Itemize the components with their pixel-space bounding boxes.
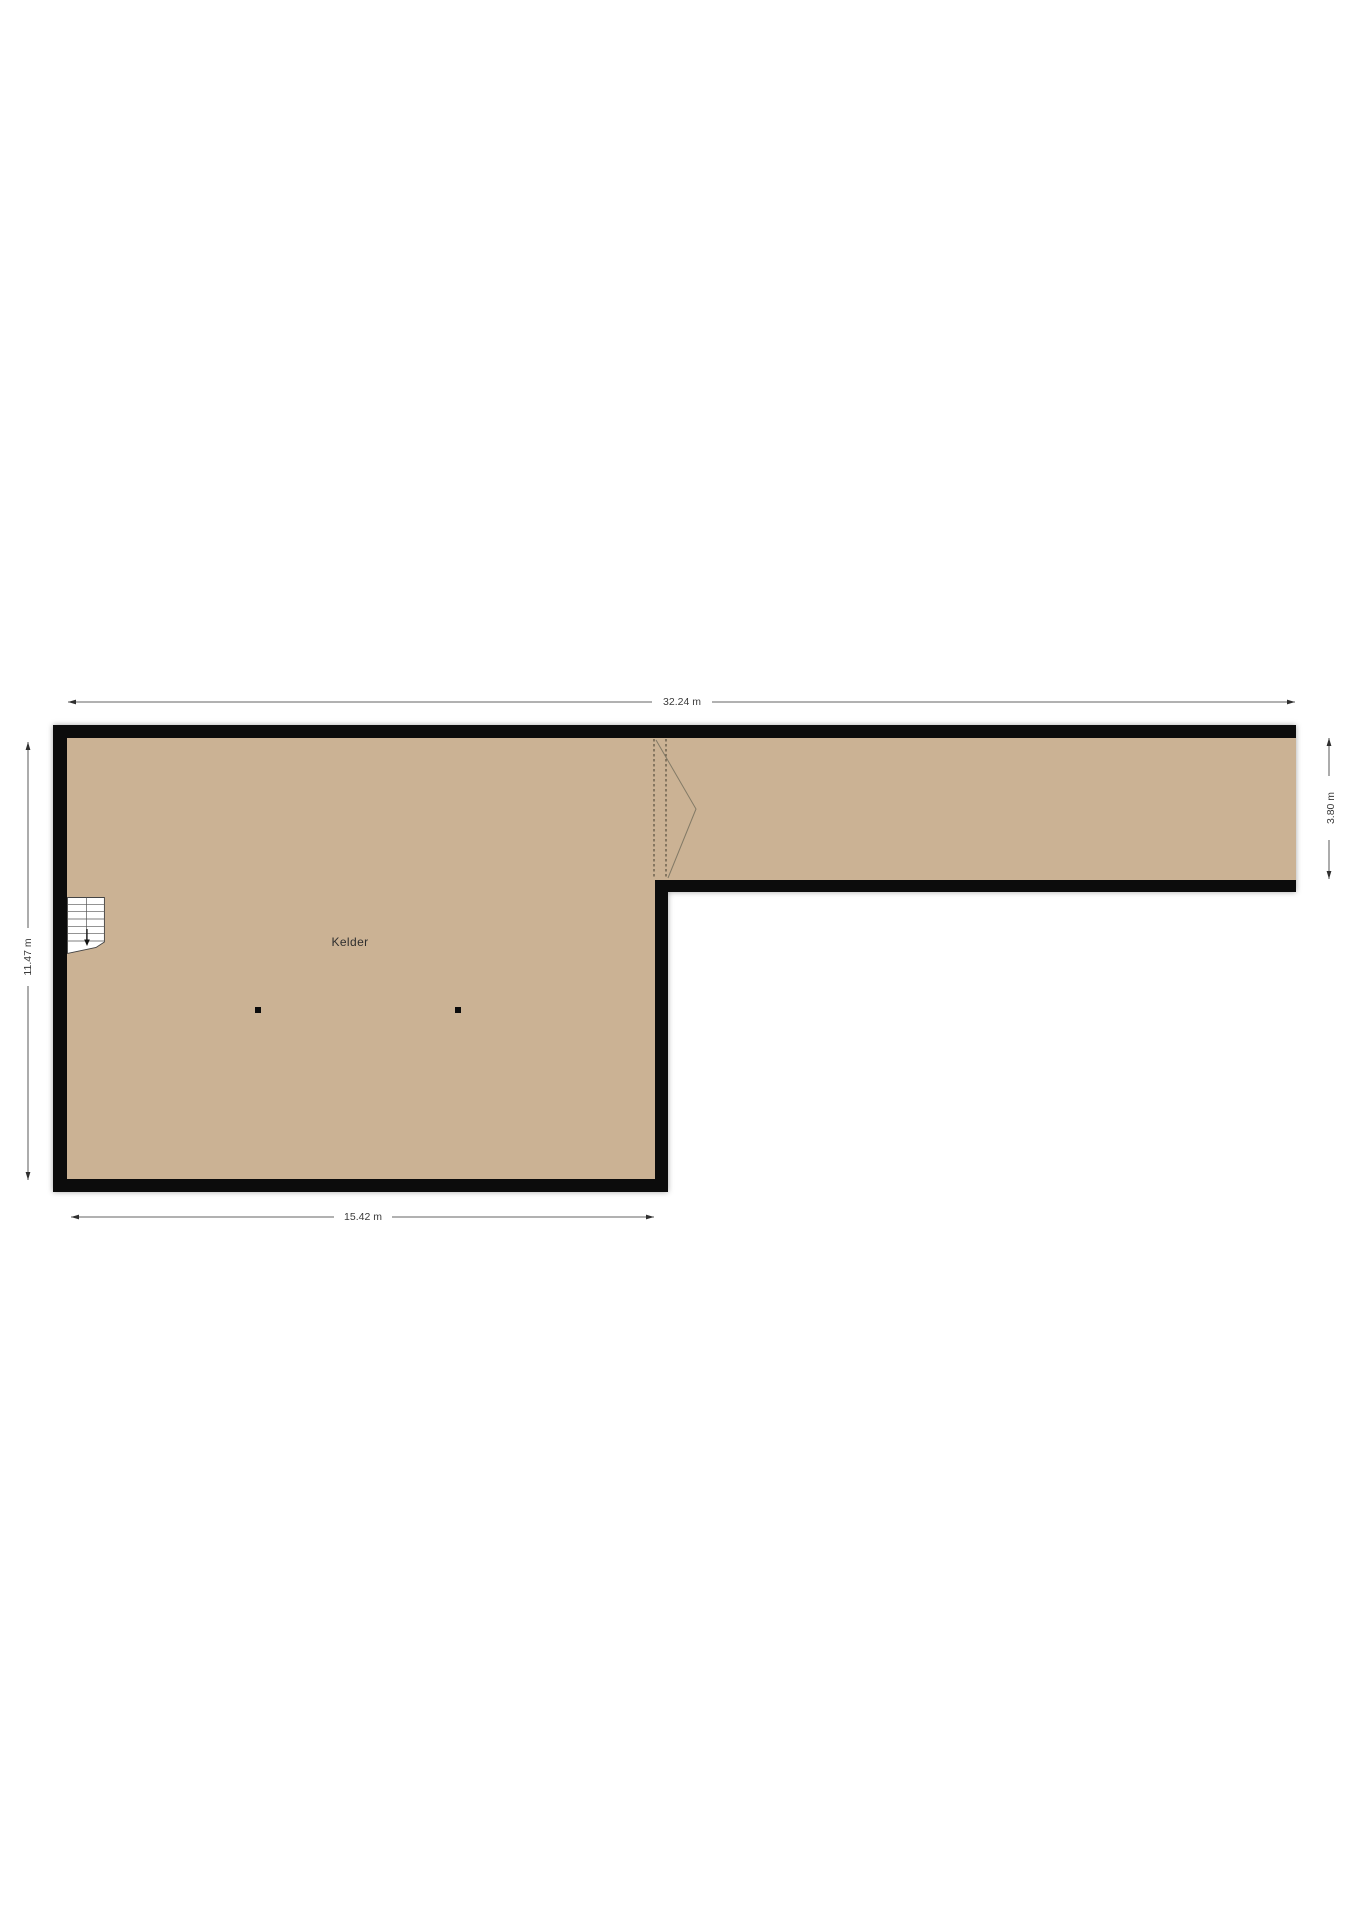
dimension-label-corridor-height: 3.80 m bbox=[1325, 789, 1337, 827]
arrow-left-icon bbox=[68, 700, 76, 705]
arrow-left-icon bbox=[71, 1215, 79, 1220]
arrow-up-icon bbox=[26, 742, 31, 750]
arrow-right-icon bbox=[646, 1215, 654, 1220]
floorplan-canvas: Kelder 32.24 m 15.42 m 11.47 m 3.80 m bbox=[0, 0, 1358, 1920]
dimension-lines bbox=[0, 0, 1358, 1920]
arrow-down-icon bbox=[26, 1172, 31, 1180]
arrow-down-icon bbox=[1327, 871, 1332, 879]
arrow-up-icon bbox=[1327, 738, 1332, 746]
dimension-label-room-width: 15.42 m bbox=[341, 1211, 385, 1223]
dimension-label-room-height: 11.47 m bbox=[22, 935, 34, 978]
arrow-right-icon bbox=[1287, 700, 1295, 705]
dimension-label-total-width: 32.24 m bbox=[660, 696, 704, 708]
